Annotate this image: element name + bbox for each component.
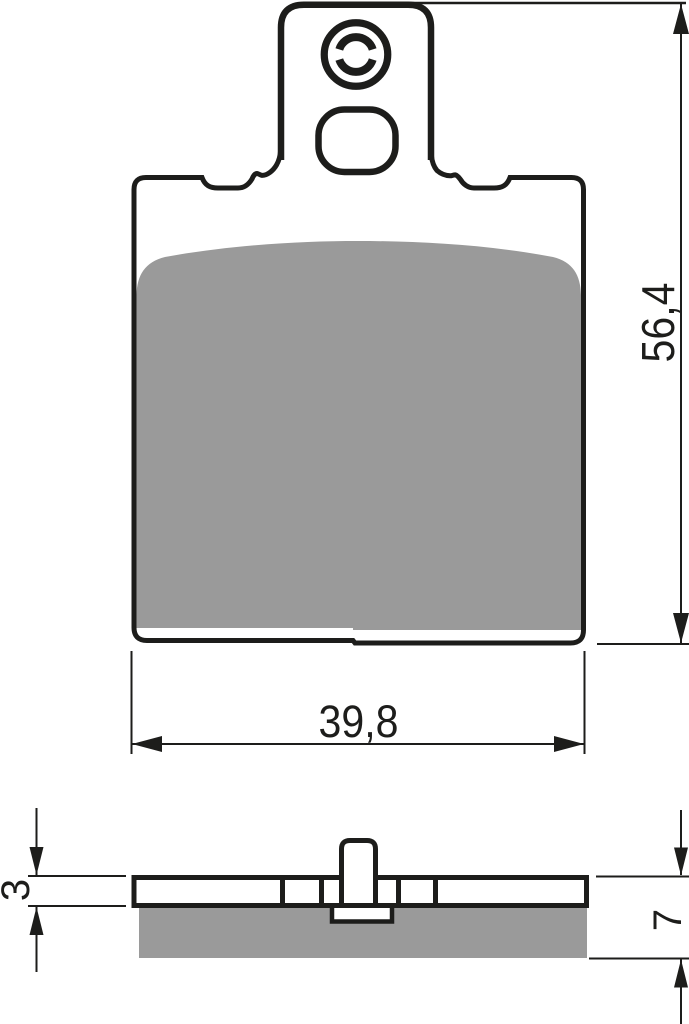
svg-text:3: 3	[0, 879, 38, 901]
svg-text:56,4: 56,4	[632, 283, 684, 363]
svg-text:7: 7	[646, 909, 689, 931]
svg-text:39,8: 39,8	[319, 696, 399, 747]
